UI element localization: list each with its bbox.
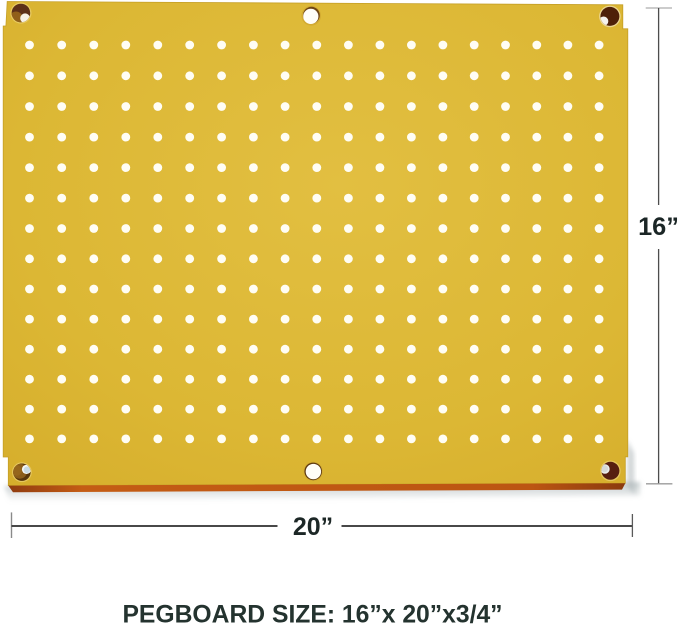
svg-text:20”: 20” (293, 513, 333, 541)
svg-text:PEGBOARD SIZE: 16”x 20”x3/4”: PEGBOARD SIZE: 16”x 20”x3/4” (122, 601, 502, 628)
svg-text:16”: 16” (638, 213, 679, 241)
